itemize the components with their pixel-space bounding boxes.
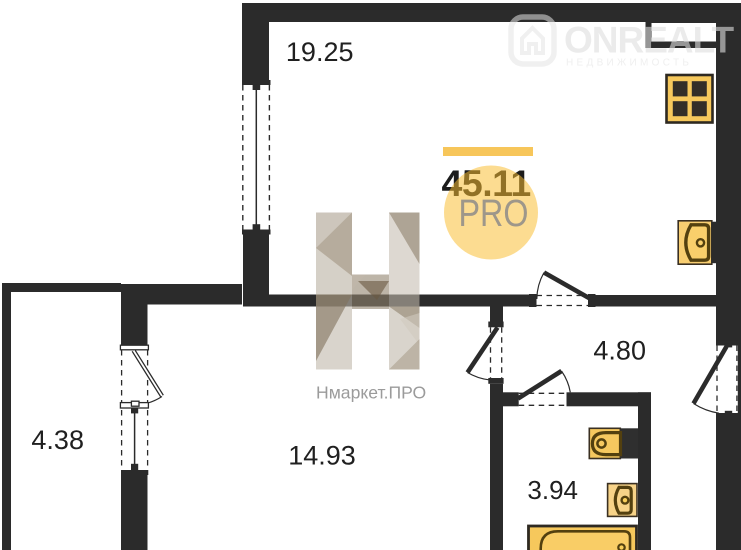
svg-text:4.80: 4.80 [593,335,646,365]
svg-text:19.25: 19.25 [286,37,354,67]
svg-text:НЕДВИЖИМОСТЬ: НЕДВИЖИМОСТЬ [566,58,692,69]
svg-text:PRO: PRO [459,193,529,235]
svg-text:Нмаркет.ПРО: Нмаркет.ПРО [316,383,426,403]
svg-text:ONREALT: ONREALT [564,20,734,61]
svg-text:4.38: 4.38 [31,425,84,455]
svg-text:3.94: 3.94 [527,475,578,505]
svg-text:14.93: 14.93 [288,440,356,470]
